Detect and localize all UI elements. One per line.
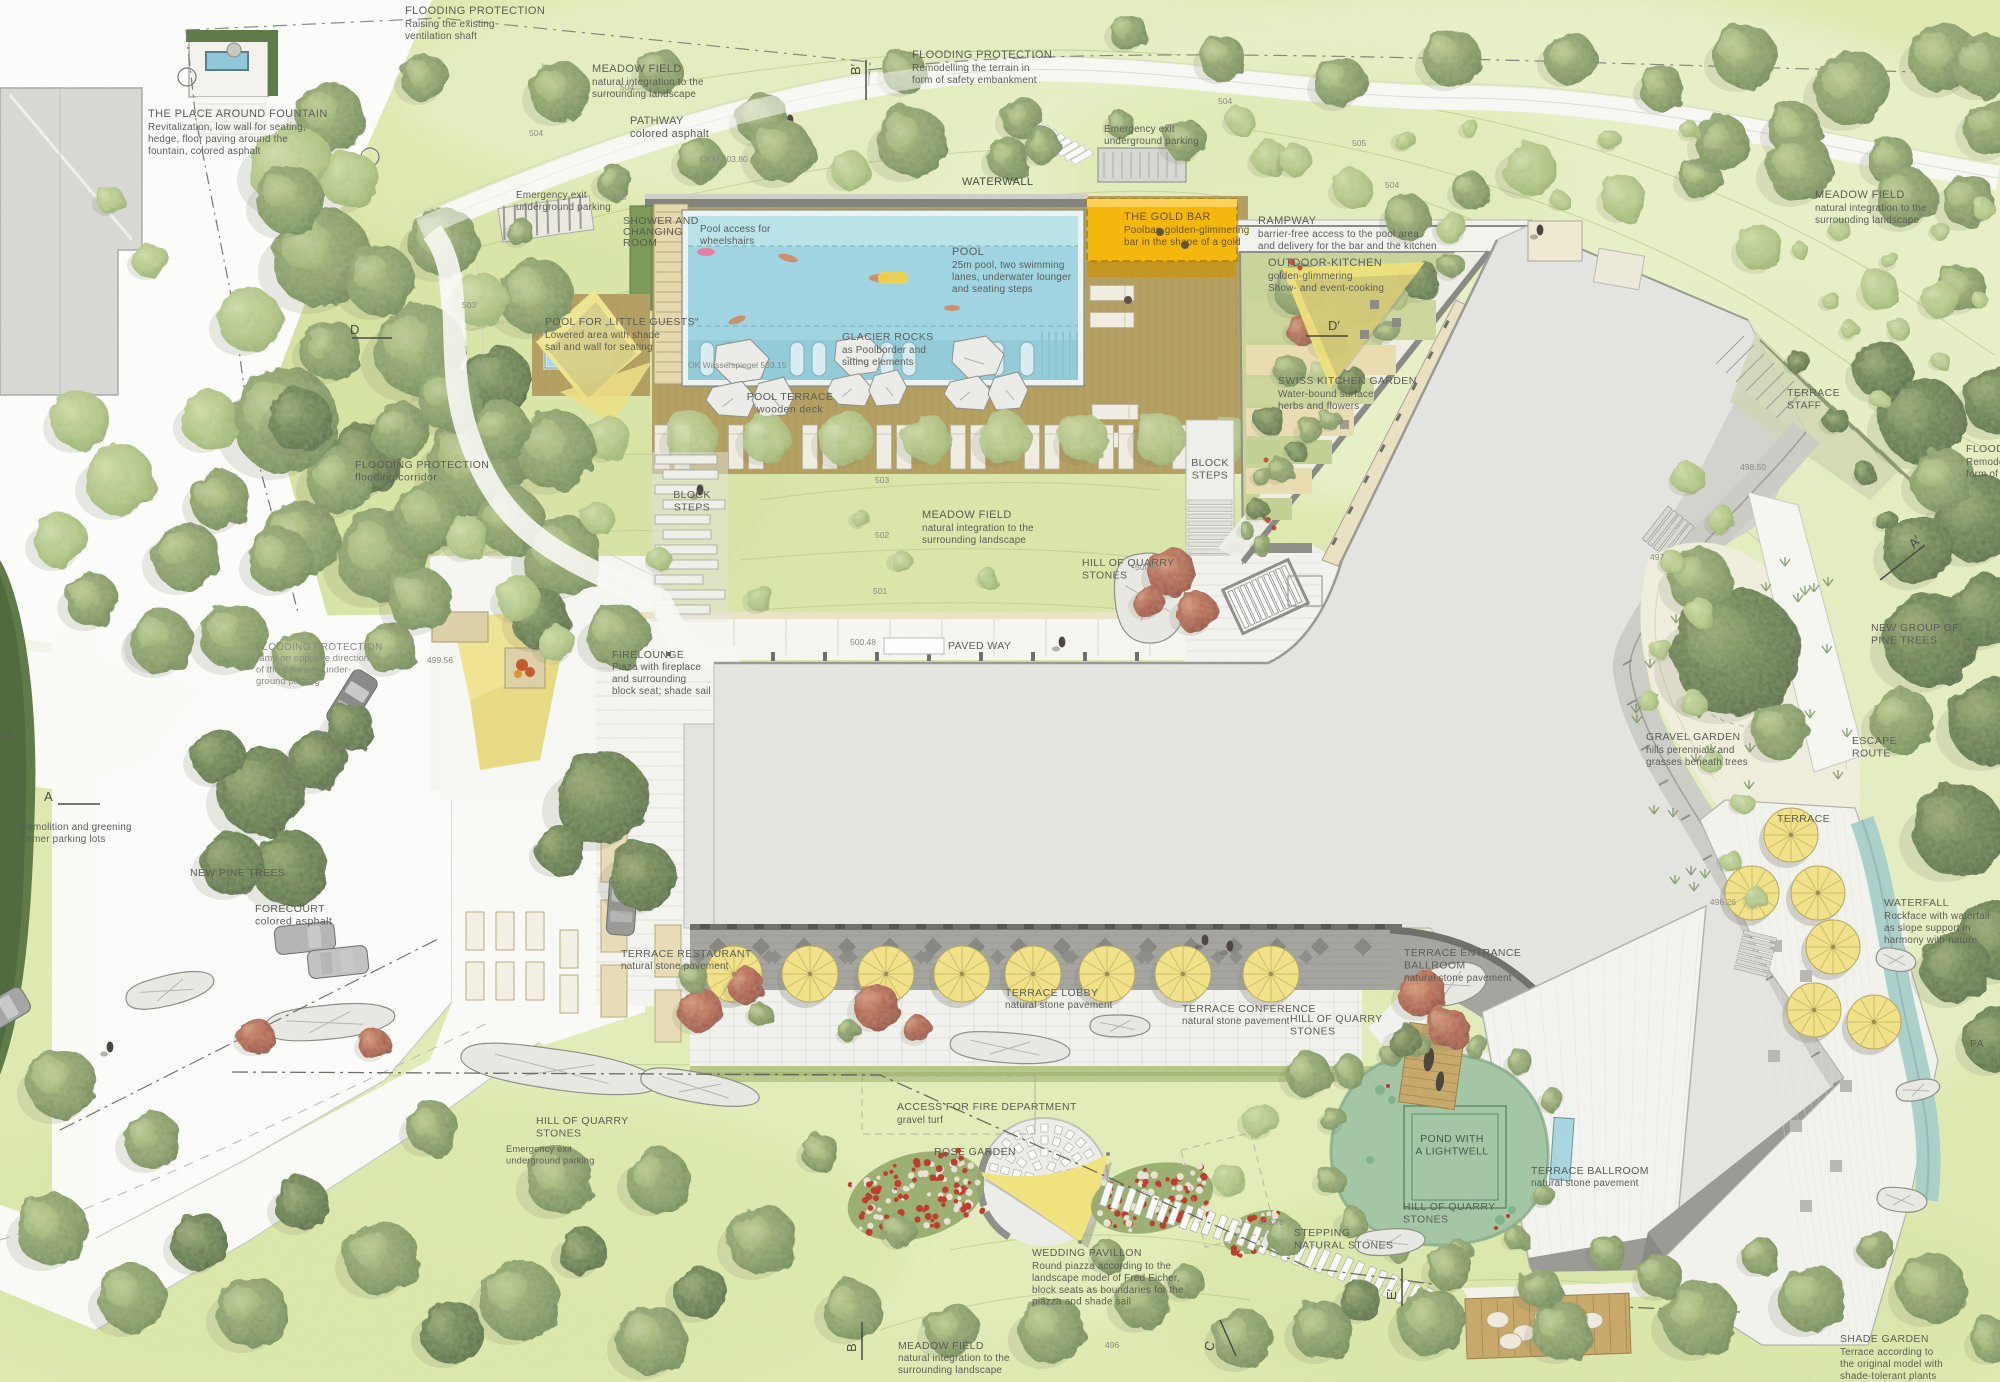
svg-text:WATERFALL: WATERFALL bbox=[1884, 897, 1949, 909]
svg-text:500.63: 500.63 bbox=[1135, 562, 1161, 572]
svg-text:WATERWALL: WATERWALL bbox=[962, 176, 1033, 188]
svg-text:GRAVEL GARDEN: GRAVEL GARDEN bbox=[1646, 731, 1740, 743]
svg-text:PA: PA bbox=[1970, 1038, 1984, 1050]
svg-text:SWISS KITCHEN GARDEN: SWISS KITCHEN GARDEN bbox=[1278, 375, 1417, 387]
svg-text:natural stone pavement: natural stone pavement bbox=[1404, 973, 1512, 984]
svg-text:THE GOLD BAR: THE GOLD BAR bbox=[1124, 211, 1211, 223]
svg-text:504: 504 bbox=[1218, 96, 1232, 106]
svg-text:natural integration to thesurr: natural integration to thesurrounding la… bbox=[922, 523, 1034, 546]
svg-text:Terrace according tothe origin: Terrace according tothe original model w… bbox=[1840, 1347, 1943, 1382]
svg-text:504: 504 bbox=[1385, 180, 1399, 190]
svg-text:503: 503 bbox=[875, 475, 889, 485]
svg-text:natural stone pavement: natural stone pavement bbox=[621, 961, 729, 972]
svg-text:SHADE GARDEN: SHADE GARDEN bbox=[1840, 1333, 1929, 1345]
svg-text:MEADOW FIELD: MEADOW FIELD bbox=[922, 509, 1012, 521]
svg-text:Lowered area with shadesail an: Lowered area with shadesail and wall for… bbox=[545, 330, 660, 353]
svg-text:RAMPWAY: RAMPWAY bbox=[1258, 215, 1317, 227]
svg-text:E′: E′ bbox=[1384, 1288, 1399, 1300]
svg-text:NEW PINE TREES: NEW PINE TREES bbox=[190, 867, 285, 879]
svg-text:497: 497 bbox=[1650, 552, 1664, 562]
svg-text:FLOODING: FLOODING bbox=[1966, 443, 2000, 455]
svg-text:FORECOURTcolored asphalt: FORECOURTcolored asphalt bbox=[255, 903, 332, 928]
svg-text:496: 496 bbox=[1105, 1340, 1119, 1350]
svg-text:TERRACE BALLROOM: TERRACE BALLROOM bbox=[1531, 1165, 1649, 1177]
svg-text:Remodelling the terrain inform: Remodelling the terrain inform of safety… bbox=[912, 63, 1037, 86]
svg-text:BLOCKSTEPS: BLOCKSTEPS bbox=[1191, 457, 1229, 482]
svg-text:POOL TERRACEwooden deck: POOL TERRACEwooden deck bbox=[747, 391, 834, 416]
svg-text:MEADOW FIELD: MEADOW FIELD bbox=[898, 1340, 984, 1352]
svg-text:OK Wasserspiegel 503.15: OK Wasserspiegel 503.15 bbox=[688, 360, 787, 370]
svg-text:Poolbar, golden-glimmeringbar: Poolbar, golden-glimmeringbar in the sha… bbox=[1124, 225, 1249, 248]
svg-text:TERRACE: TERRACE bbox=[1777, 813, 1830, 825]
svg-text:natural integration to thesurr: natural integration to thesurrounding la… bbox=[592, 77, 704, 100]
svg-text:as Poolborder andsitting eleme: as Poolborder andsitting elements bbox=[842, 345, 926, 368]
svg-text:ng: ng bbox=[0, 730, 12, 741]
svg-text:POOL: POOL bbox=[952, 246, 984, 258]
svg-text:ESCAPEROUTE: ESCAPEROUTE bbox=[1852, 735, 1897, 760]
svg-text:D: D bbox=[350, 322, 359, 337]
svg-text:OKM 503.80: OKM 503.80 bbox=[700, 154, 748, 164]
svg-text:gravel turf: gravel turf bbox=[897, 1115, 943, 1126]
svg-text:496.26: 496.26 bbox=[1710, 897, 1736, 907]
svg-text:TERRACE LOBBY: TERRACE LOBBY bbox=[1005, 987, 1098, 999]
svg-text:A: A bbox=[44, 789, 53, 804]
svg-text:POND WITHA LIGHTWELL: POND WITHA LIGHTWELL bbox=[1415, 1133, 1488, 1158]
svg-text:502: 502 bbox=[875, 530, 889, 540]
svg-text:POOL FOR „LITTLE GUESTS“: POOL FOR „LITTLE GUESTS“ bbox=[545, 316, 699, 328]
svg-text:FIRELOUNGE: FIRELOUNGE bbox=[612, 649, 684, 661]
svg-text:504: 504 bbox=[529, 128, 543, 138]
svg-text:500.48: 500.48 bbox=[850, 637, 876, 647]
svg-text:GLACIER ROCKS: GLACIER ROCKS bbox=[842, 331, 934, 343]
svg-text:WEDDING PAVILLON: WEDDING PAVILLON bbox=[1032, 1247, 1142, 1259]
svg-text:504: 504 bbox=[620, 82, 634, 92]
svg-text:natural integration to thesurr: natural integration to thesurrounding la… bbox=[1815, 203, 1927, 226]
svg-text:499.56: 499.56 bbox=[427, 655, 453, 665]
svg-text:natural stone pavement: natural stone pavement bbox=[1005, 1000, 1113, 1011]
svg-text:505: 505 bbox=[1352, 138, 1366, 148]
svg-text:FLOODING PROTECTION: FLOODING PROTECTION bbox=[405, 5, 545, 17]
svg-text:natural integration to thesurr: natural integration to thesurrounding la… bbox=[898, 1353, 1010, 1376]
svg-text:FLOODING PROTECTION: FLOODING PROTECTION bbox=[912, 49, 1052, 61]
svg-text:THE PLACE AROUND FOUNTAIN: THE PLACE AROUND FOUNTAIN bbox=[148, 108, 328, 120]
svg-text:natural stone pavement: natural stone pavement bbox=[1531, 1178, 1639, 1189]
svg-text:503: 503 bbox=[462, 300, 476, 310]
svg-text:496.76: 496.76 bbox=[1258, 1217, 1284, 1227]
svg-text:498.50: 498.50 bbox=[1740, 462, 1766, 472]
svg-text:PAVED WAY: PAVED WAY bbox=[948, 640, 1011, 652]
svg-text:OUTDOOR-KITCHEN: OUTDOOR-KITCHEN bbox=[1268, 257, 1382, 269]
svg-text:MEADOW FIELD: MEADOW FIELD bbox=[592, 63, 682, 75]
svg-text:Remodellinform of saf: Remodellinform of saf bbox=[1966, 457, 2000, 480]
svg-text:barrier-free access to the po: barrier-free access to the pool areaand … bbox=[1258, 229, 1437, 252]
svg-text:ROSE GARDEN: ROSE GARDEN bbox=[934, 1146, 1016, 1158]
svg-text:B: B bbox=[844, 1343, 859, 1352]
svg-text:natural stone pavement: natural stone pavement bbox=[1182, 1016, 1290, 1027]
svg-text:D′: D′ bbox=[1328, 318, 1340, 333]
svg-text:503: 503 bbox=[612, 192, 626, 202]
svg-text:501: 501 bbox=[873, 586, 887, 596]
svg-text:ACCESS FOR FIRE DEPARTMENT: ACCESS FOR FIRE DEPARTMENT bbox=[897, 1101, 1077, 1113]
svg-text:TERRACE RESTAURANT: TERRACE RESTAURANT bbox=[621, 948, 752, 960]
svg-text:B′: B′ bbox=[848, 63, 863, 75]
svg-text:BLOCKSTEPS: BLOCKSTEPS bbox=[673, 489, 711, 514]
svg-text:hills perennials andgrasses be: hills perennials andgrasses beneath tree… bbox=[1646, 745, 1748, 768]
svg-text:MEADOW FIELD: MEADOW FIELD bbox=[1815, 189, 1905, 201]
